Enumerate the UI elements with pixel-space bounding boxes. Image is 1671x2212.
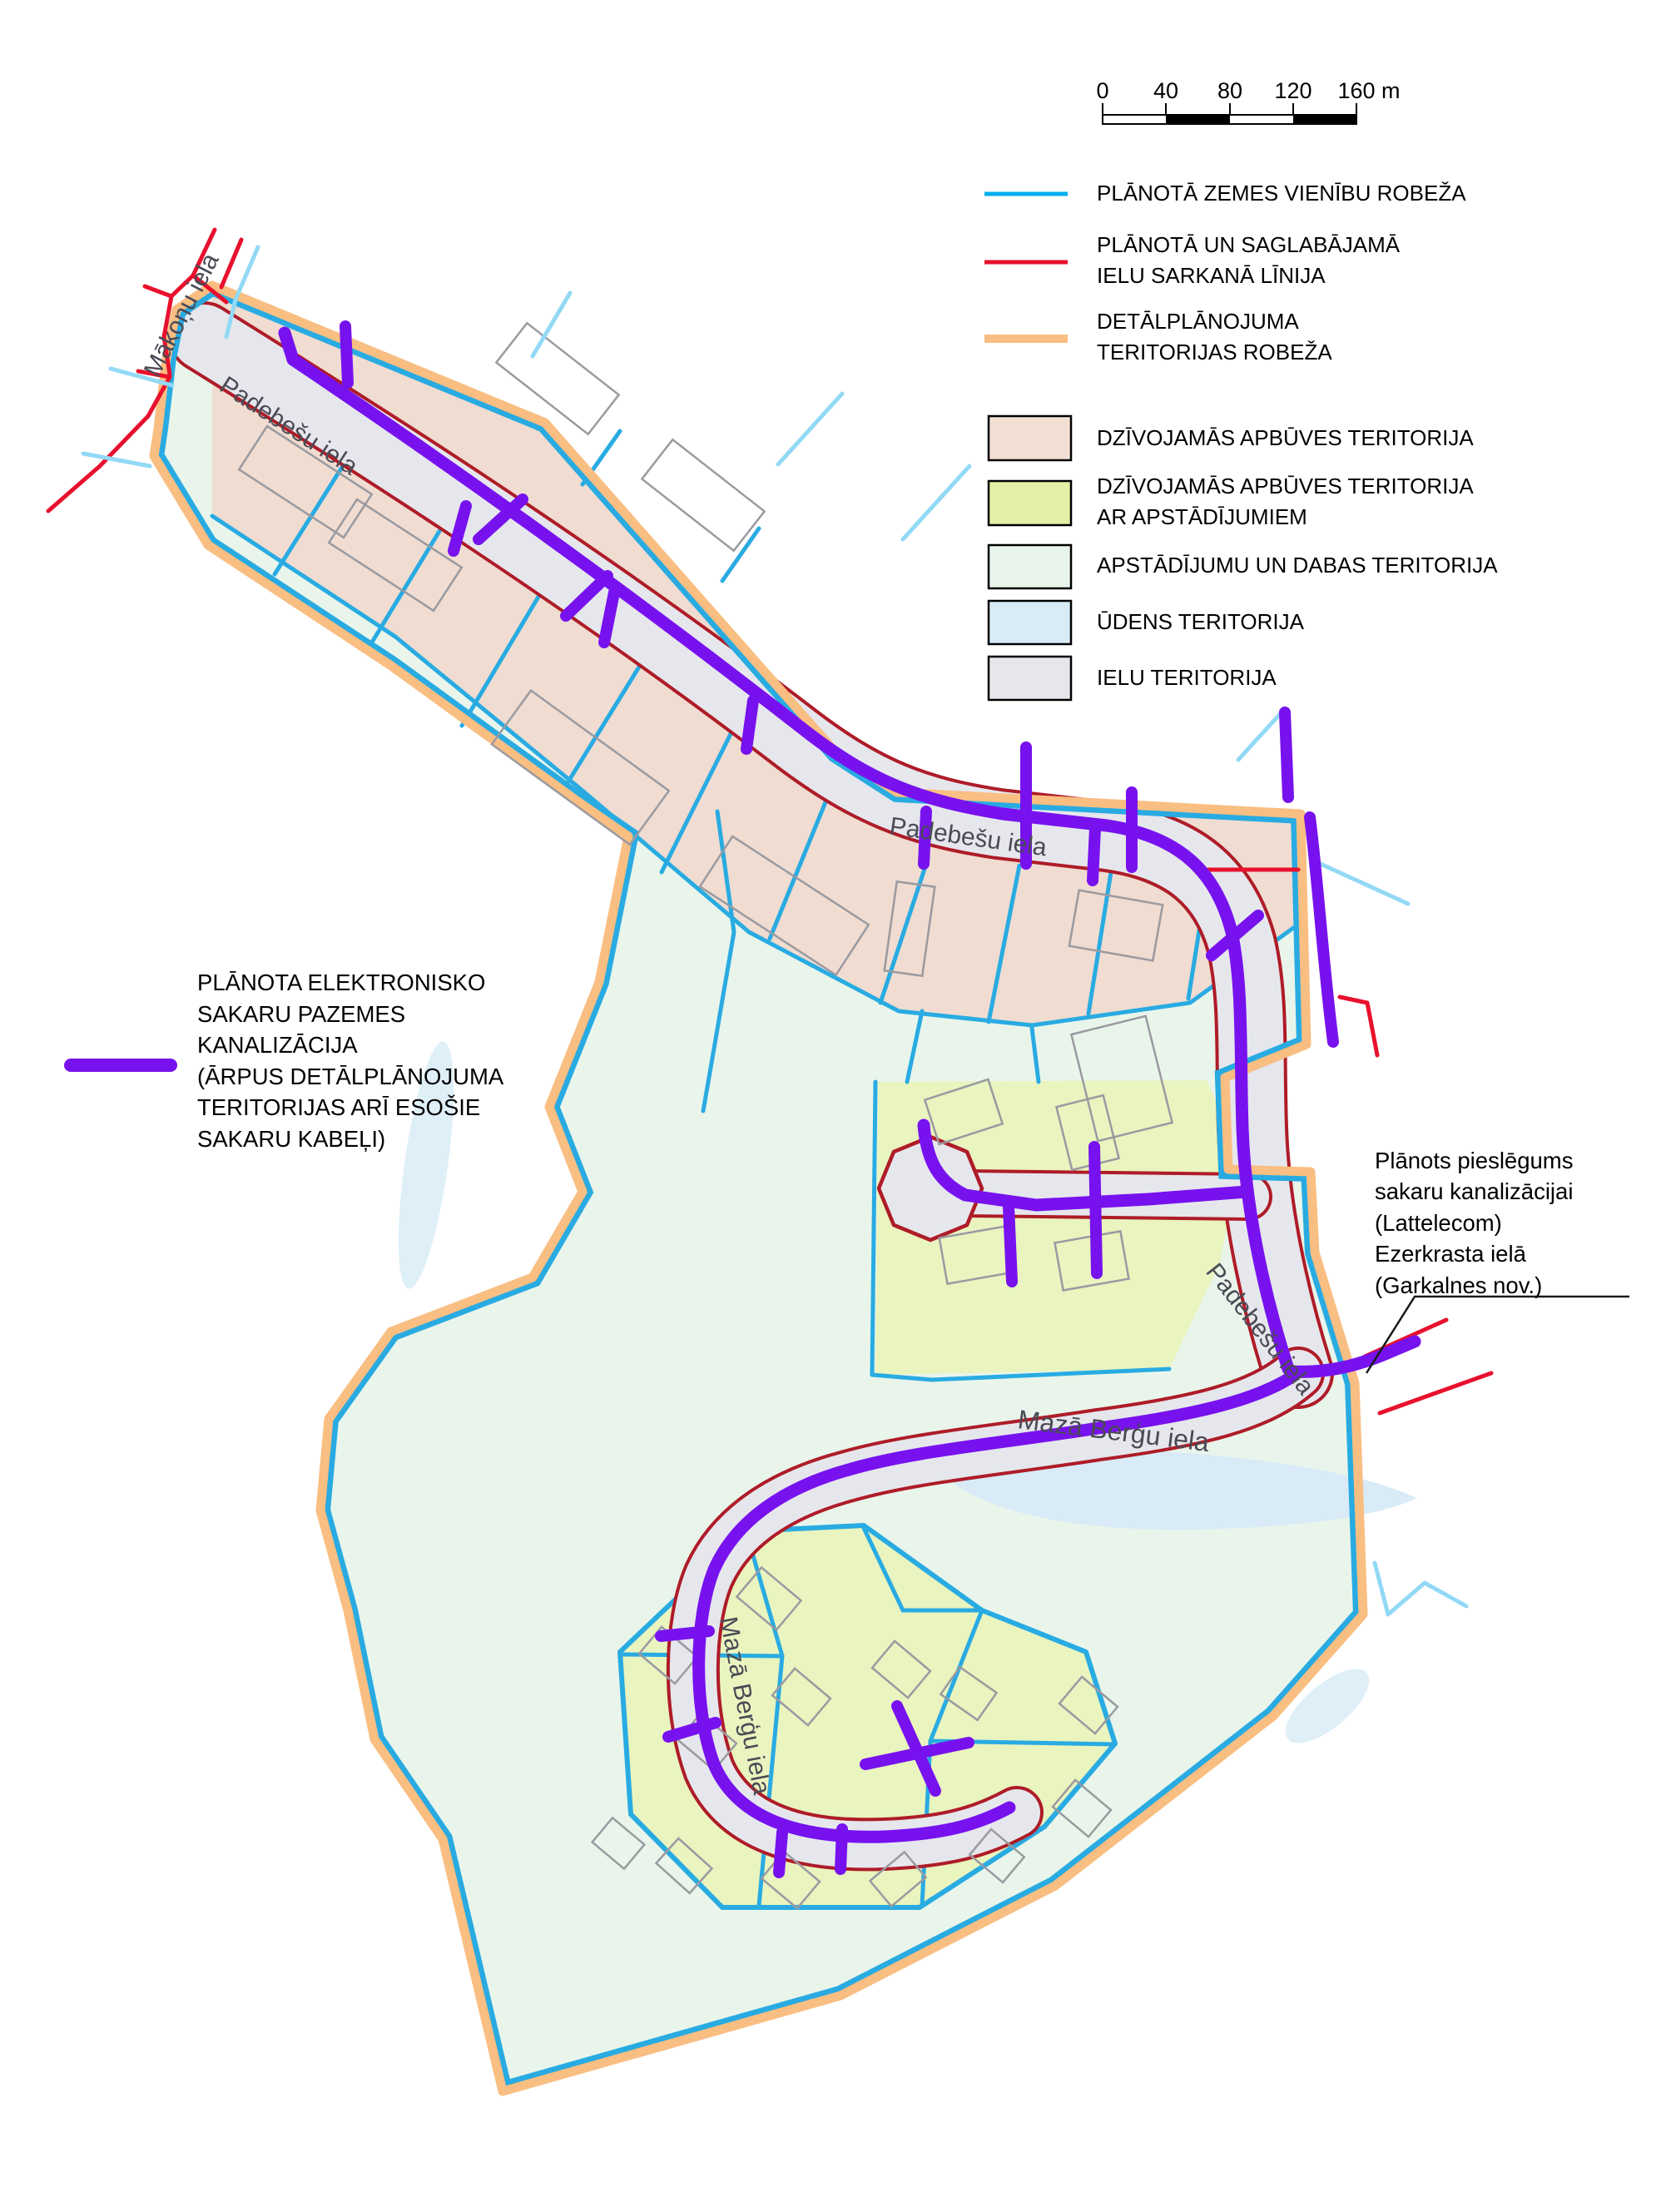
legend-label: AR APSTĀDĪJUMIEM	[1097, 504, 1307, 529]
conduit-note-line: TERITORIJAS ARĪ ESOŠIE	[197, 1094, 480, 1120]
legend-label: APSTĀDĪJUMU UN DABAS TERITORIJA	[1097, 553, 1498, 578]
legend-swatch-residential-greenery	[989, 481, 1071, 525]
connection-note-line: (Garkalnes nov.)	[1375, 1272, 1542, 1298]
scale-bar: 0 40 80 120 160 m	[1096, 78, 1400, 124]
connection-note-line: Ezerkrasta ielā	[1375, 1241, 1527, 1267]
scale-tick-80: 80	[1217, 78, 1242, 103]
annotation-leader-line	[1366, 1297, 1629, 1373]
legend-swatch-residential	[989, 416, 1071, 460]
scale-tick-40: 40	[1153, 78, 1178, 103]
legend-label: TERITORIJAS ROBEŽA	[1097, 340, 1332, 365]
legend-swatch-water	[989, 601, 1071, 644]
scale-tick-0: 0	[1096, 78, 1108, 103]
scale-tick-120: 120	[1274, 78, 1312, 103]
legend-label: PLĀNOTĀ UN SAGLABĀJAMĀ	[1097, 232, 1401, 257]
legend-label: DZĪVOJAMĀS APBŪVES TERITORIJA	[1097, 474, 1474, 498]
connection-note-line: (Lattelecom)	[1375, 1210, 1502, 1236]
legend-swatch-nature	[989, 545, 1071, 588]
legend-label: DETĀLPLĀNOJUMA	[1097, 309, 1299, 334]
conduit-note-line: (ĀRPUS DETĀLPLĀNOJUMA	[197, 1064, 504, 1089]
legend-label: ŪDENS TERITORIJA	[1097, 609, 1305, 634]
conduit-note-line: SAKARU PAZEMES	[197, 1001, 405, 1027]
conduit-note-line: KANALIZĀCIJA	[197, 1032, 358, 1058]
conduit-note-line: PLĀNOTA ELEKTRONISKO	[197, 970, 485, 995]
legend-label: DZĪVOJAMĀS APBŪVES TERITORIJA	[1097, 425, 1474, 450]
legend-swatch-street	[989, 657, 1071, 700]
connection-note-line: Plānots pieslēgums	[1375, 1148, 1573, 1173]
detail-plan-map: Mākoņu iela Padebešu iela Padebešu iela …	[0, 0, 1671, 2212]
connection-annotation: Plānots pieslēgums sakaru kanalizācijai …	[1375, 1148, 1573, 1298]
connection-note-line: sakaru kanalizācijai	[1375, 1178, 1573, 1204]
conduit-note-line: SAKARU KABEĻI)	[197, 1126, 385, 1152]
legend: PLĀNOTĀ ZEMES VIENĪBU ROBEŽA PLĀNOTĀ UN …	[984, 181, 1498, 700]
legend-label: IELU SARKANĀ LĪNIJA	[1097, 263, 1326, 288]
legend-label: IELU TERITORIJA	[1097, 665, 1277, 690]
legend-label: PLĀNOTĀ ZEMES VIENĪBU ROBEŽA	[1097, 181, 1466, 206]
scale-tick-160m: 160 m	[1337, 78, 1400, 103]
